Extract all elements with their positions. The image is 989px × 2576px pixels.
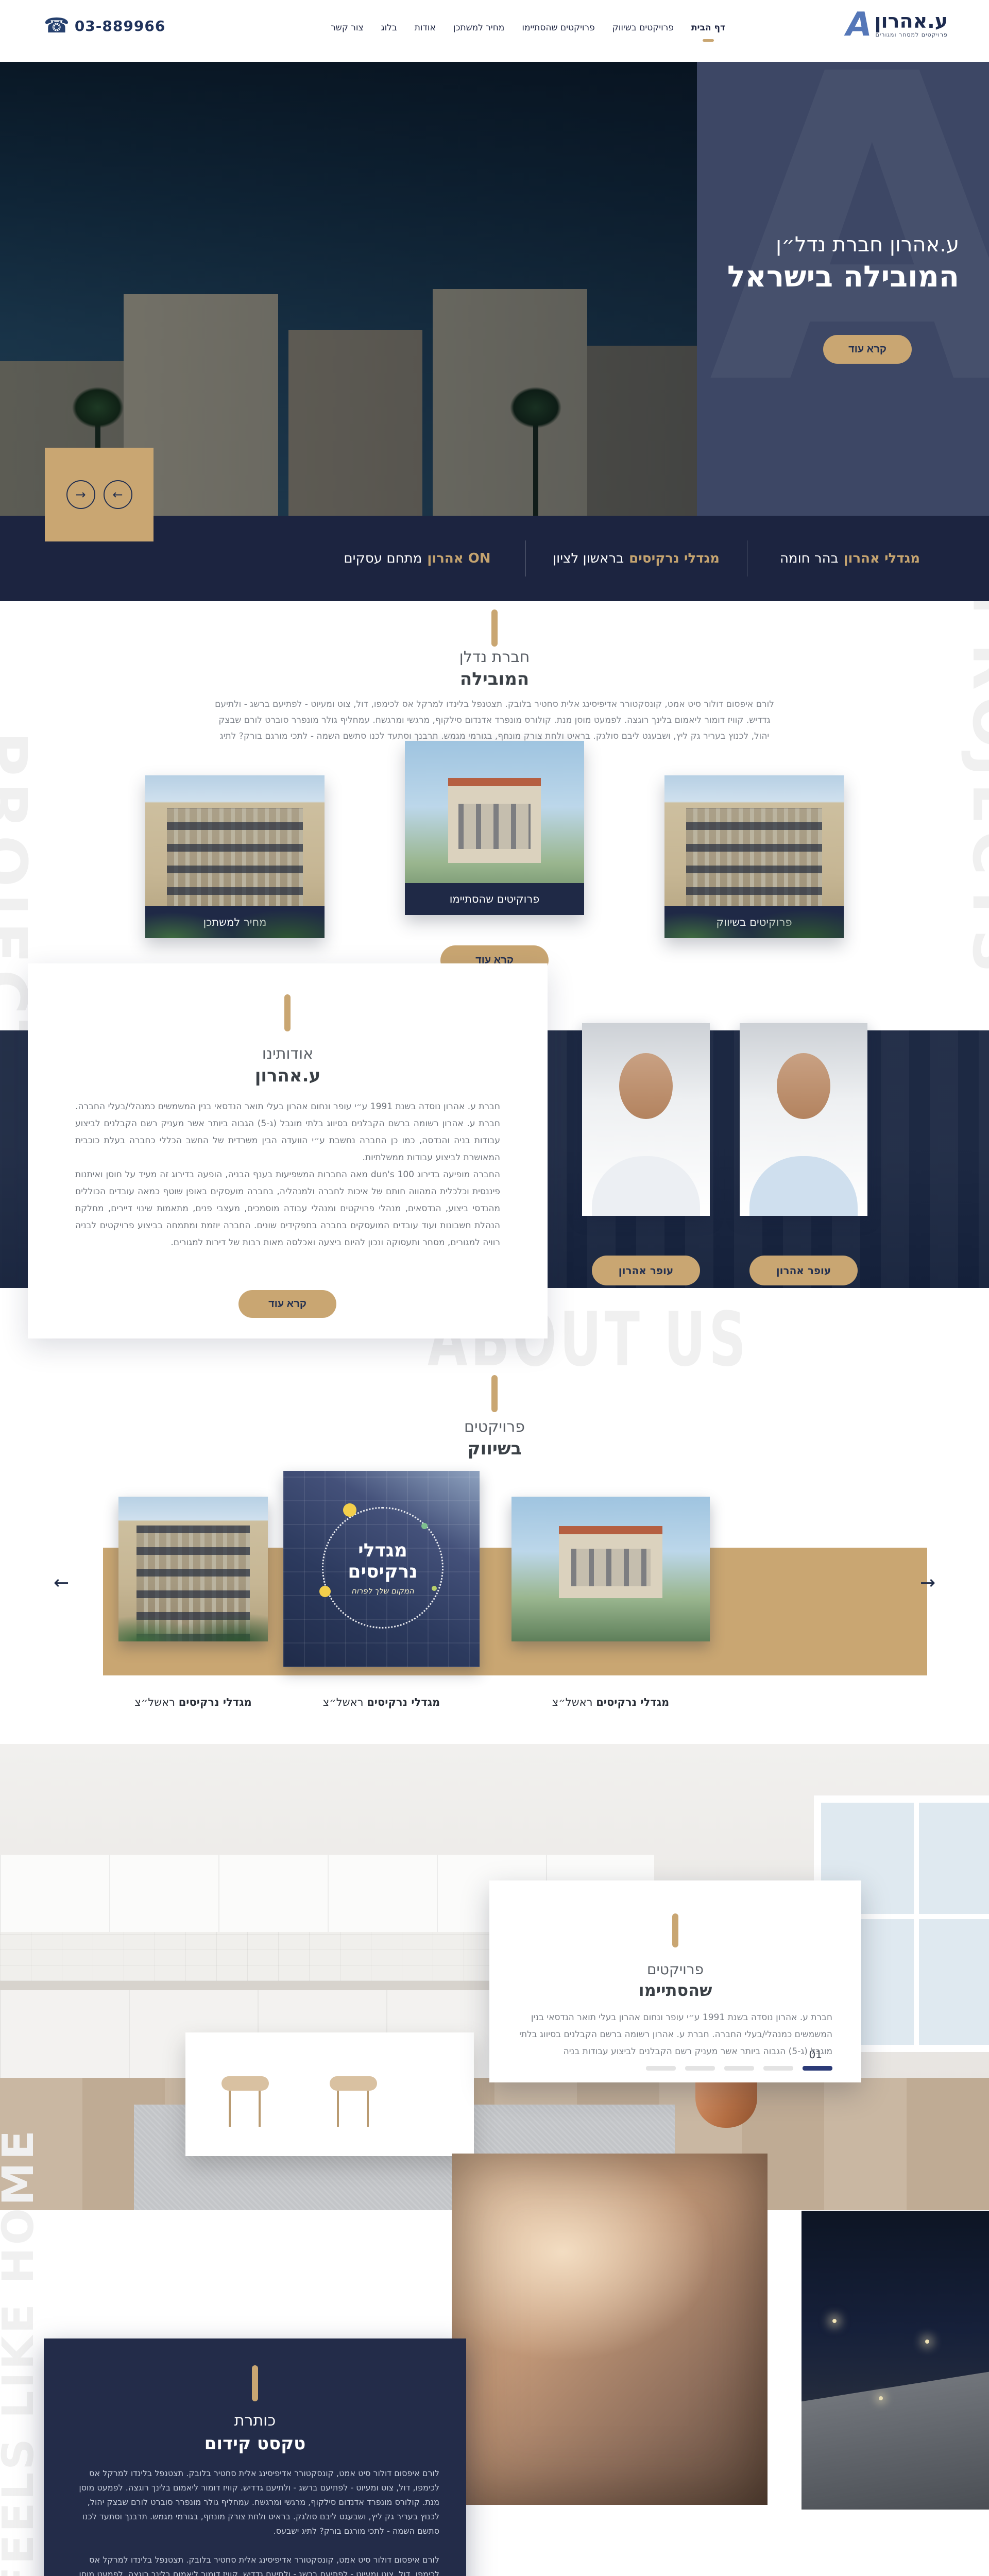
hero-title-line2: המובילה בישראל xyxy=(727,260,959,294)
hero-read-more-button[interactable]: קרא עוד xyxy=(823,335,912,364)
stool xyxy=(330,2076,377,2091)
tab-aharon-on[interactable]: ON אהרוןמתחם עסקים xyxy=(314,516,520,601)
portrait-body xyxy=(749,1156,858,1216)
founder-name-badge: עופר אהרון xyxy=(749,1256,858,1285)
hero-panel: A ע.אהרון חברת נדל״ן המובילה בישראל קרא … xyxy=(697,62,989,516)
intro-title-bold: המובילה xyxy=(0,669,989,689)
marketing-title-light: פרויקטים xyxy=(0,1418,989,1436)
section-gold-bar xyxy=(491,609,498,647)
feels-like-home-watermark: FEELS LIKE HOME xyxy=(0,2128,43,2576)
phone-icon: ☎ xyxy=(44,15,70,36)
header: ע.אהרון פרויקטים למסחר ומגורים A דף הבית… xyxy=(0,0,989,62)
about-title-bold: ע.אהרון xyxy=(28,1065,548,1086)
completed-title-light: פרויקטים xyxy=(489,1961,861,1978)
about-paragraph: חברת ע. אהרון נוסדה בשנת 1991 ע״י עופר ו… xyxy=(75,1098,500,1251)
project-card-completed[interactable]: פרוקיטים שהסתיימו xyxy=(405,741,584,915)
carousel-prev-arrow[interactable]: ← xyxy=(54,1572,69,1594)
completed-excerpt: חברת ע. אהרון נוסדה בשנת 1991 ע״י עופר ו… xyxy=(518,2009,832,2061)
tab-divider xyxy=(747,540,747,577)
logo-tagline: פרויקטים למסחר ומגורים xyxy=(875,31,948,38)
carousel-next-arrow[interactable]: → xyxy=(920,1572,935,1594)
project-card-label: פרוקיטים שהסתיימו xyxy=(405,883,584,915)
section-gold-bar xyxy=(672,1913,678,1947)
nav-mechir-lamishtaken[interactable]: מחיר למשתכן xyxy=(453,23,505,33)
flower-icon xyxy=(343,1503,356,1517)
portrait-head xyxy=(619,1053,673,1119)
leaf-dot xyxy=(432,1586,437,1591)
completed-card: פרויקטים שהסתיימו חברת ע. אהרון נוסדה בש… xyxy=(489,1880,861,2082)
nav-home[interactable]: דף הבית xyxy=(691,23,725,33)
pagination-dash[interactable] xyxy=(724,2066,754,2071)
tab-divider xyxy=(525,540,526,577)
carousel-slide[interactable] xyxy=(511,1497,710,1641)
slide-page-number: 01 xyxy=(809,2048,822,2061)
promo-title-light: כותרת xyxy=(44,2412,466,2430)
hero-title-line1: ע.אהרון חברת נדל״ן xyxy=(776,233,959,257)
about-read-more-button[interactable]: קרא עוד xyxy=(238,1290,336,1318)
portrait-body xyxy=(592,1156,700,1216)
logo-name: ע.אהרון xyxy=(875,11,948,32)
founder-photo xyxy=(740,1023,867,1216)
slide-caption: מגדלי נרקיסים ראשל״צ xyxy=(511,1696,710,1708)
main-nav: דף הבית פרויקטים בשיווק פרויקטים שהסתיימ… xyxy=(331,23,725,33)
intro-title-light: חברת נדלן xyxy=(0,648,989,666)
pagination-dash[interactable] xyxy=(763,2066,793,2071)
leaf-dot xyxy=(421,1523,428,1529)
completed-projects-section: פרויקטים שהסתיימו חברת ע. אהרון נוסדה בש… xyxy=(0,1744,989,2210)
nav-blog[interactable]: בלוג xyxy=(381,23,397,33)
promo-title-bold: טקסט קידום xyxy=(44,2433,466,2454)
section-gold-bar xyxy=(491,1375,498,1412)
family-photo xyxy=(452,2154,768,2505)
promo-paragraph: לורם איפסום דולור סיט אמט, קונסקטורר אדי… xyxy=(71,2466,439,2576)
tab-aharon-towers[interactable]: מגדלי אהרוןבהר חומה xyxy=(757,516,943,601)
night-street-photo xyxy=(802,2211,989,2510)
project-card-marketing[interactable]: פרוקיטים בשיווק xyxy=(664,775,844,938)
section-gold-bar xyxy=(252,2365,258,2401)
logo-a-icon: A xyxy=(843,8,874,41)
pagination-dash[interactable] xyxy=(646,2066,676,2071)
pagination-dash-active[interactable] xyxy=(803,2066,832,2071)
project-card-image xyxy=(664,775,844,938)
founder-name-badge: עופר אהרון xyxy=(592,1256,700,1285)
carousel-pagination xyxy=(646,2066,832,2071)
hero-slider-controls: ← → xyxy=(45,448,154,541)
slide-caption: מגדלי נרקיסים ראשל״צ xyxy=(118,1696,268,1708)
slide-image xyxy=(511,1497,710,1641)
header-phone[interactable]: ☎ 03-889966 xyxy=(44,15,165,36)
promo-card: כותרת טקסט קידום לורם איפסום דולור סיט א… xyxy=(44,2338,466,2576)
page: ע.אהרון פרויקטים למסחר ומגורים A דף הבית… xyxy=(0,0,989,2576)
next-arrow-button[interactable]: → xyxy=(66,480,95,509)
nav-projects-completed[interactable]: פרויקטים שהסתיימו xyxy=(522,23,594,33)
site-logo[interactable]: ע.אהרון פרויקטים למסחר ומגורים A xyxy=(846,8,948,41)
narkisim-project-logo: מגדלי נרקיסים המקום שלך לפרוח xyxy=(322,1507,444,1629)
flower-icon xyxy=(319,1586,331,1597)
pagination-dash[interactable] xyxy=(685,2066,715,2071)
about-title-light: אודותינו xyxy=(28,1045,548,1063)
slide-image xyxy=(118,1497,268,1641)
section-gold-bar xyxy=(284,994,291,1031)
founder-photo xyxy=(582,1023,710,1216)
nav-projects-marketing[interactable]: פרויקטים בשיווק xyxy=(612,23,674,33)
marketing-title-bold: בשיווק xyxy=(0,1438,989,1459)
project-card-mechir[interactable]: מחיר למשתכן xyxy=(145,775,325,938)
active-underline xyxy=(703,39,714,42)
carousel-slide[interactable] xyxy=(118,1497,268,1641)
tab-narkisim-towers[interactable]: מגדלי נרקיסיםבראשון לציון xyxy=(536,516,737,601)
completed-title-bold: שהסתיימו xyxy=(489,1980,861,2000)
about-card: אודותינו ע.אהרון חברת ע. אהרון נוסדה בשנ… xyxy=(28,963,548,1338)
stool xyxy=(221,2076,269,2091)
slide-caption: מגדלי נרקיסים ראשל״צ xyxy=(283,1696,480,1708)
nav-about[interactable]: אודות xyxy=(415,23,436,33)
phone-number: 03-889966 xyxy=(75,18,165,35)
project-card-image xyxy=(145,775,325,938)
portrait-head xyxy=(777,1053,830,1119)
prev-arrow-button[interactable]: ← xyxy=(104,480,132,509)
nav-contact[interactable]: צור קשר xyxy=(331,23,363,33)
